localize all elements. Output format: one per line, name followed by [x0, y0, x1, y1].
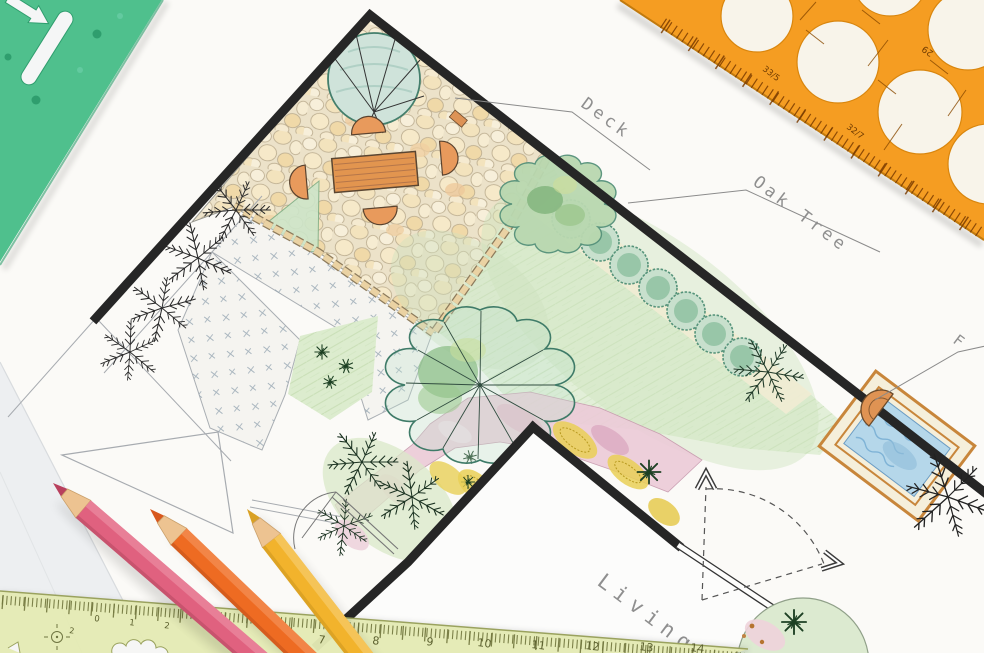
stencil-hole	[32, 96, 41, 105]
garden-plan-photo: Deck Oak Tree F Living 0 1 2 7 8 9 10 11…	[0, 0, 984, 653]
compass-number: 2	[69, 626, 75, 636]
hedge-bush	[723, 338, 761, 376]
ruler-number: 11	[531, 638, 546, 653]
oak-tree	[500, 155, 616, 253]
ruler-number: 14	[690, 641, 705, 653]
ruler-number: 10	[477, 636, 492, 651]
stencil-hole	[93, 30, 102, 39]
dining-table	[332, 151, 419, 192]
ruler-number: 13	[639, 640, 654, 653]
photo-canvas: Deck Oak Tree F Living 0 1 2 7 8 9 10 11…	[0, 0, 984, 653]
ruler-number: 12	[585, 639, 600, 653]
stencil-hole	[5, 54, 12, 61]
